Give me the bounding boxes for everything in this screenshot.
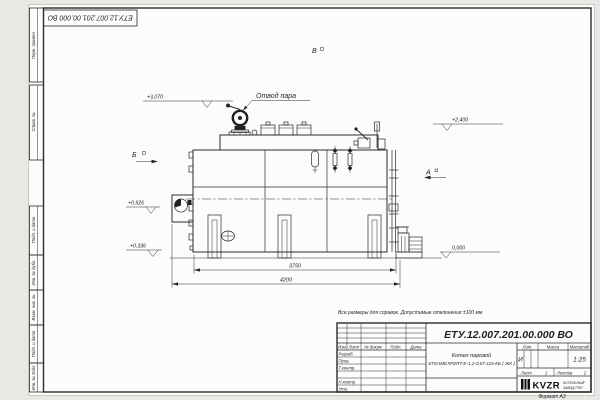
product-name-1: Котел паровой xyxy=(452,352,491,359)
logo-icon xyxy=(521,379,530,390)
svg-text:А: А xyxy=(425,170,431,177)
logo-name: KVZR xyxy=(533,381,560,392)
col-header: № докум. xyxy=(364,344,382,349)
logo-sub-2: ЗАВОД РЭП xyxy=(563,386,583,390)
dim-4200-text: 4200 xyxy=(280,278,293,284)
top-designation-text: ЕТУ.12.007.201.00.000 ВО xyxy=(47,13,133,20)
sign-label: Н.контр. xyxy=(339,380,357,385)
margin-label: Взам. инв. № xyxy=(31,294,36,320)
svg-text:+0,926: +0,926 xyxy=(128,201,144,207)
engineering-drawing-sheet: Перв. примен. Справ. № Подп. и дата Инв.… xyxy=(0,0,600,400)
col-header: Подп. xyxy=(390,344,401,349)
svg-text:0,000: 0,000 xyxy=(452,246,465,252)
format-note: Формат А3 xyxy=(538,394,566,400)
sheets-label: Листов xyxy=(556,370,573,375)
lit-value: И xyxy=(518,357,523,364)
reference-note: Все размеры для справок. Допустимые откл… xyxy=(338,310,483,316)
scale-value: 1:25 xyxy=(573,357,586,364)
svg-text:В: В xyxy=(312,48,317,55)
sight-glass xyxy=(222,231,235,241)
margin-label: Подп. и дата xyxy=(31,216,36,243)
steam-outlet-label: Отвод пара xyxy=(256,92,296,100)
sign-label: Утв. xyxy=(339,386,349,391)
margin-label: Подп. и дата xyxy=(31,330,36,357)
sign-label: Разраб. xyxy=(339,352,354,357)
logo-sub-1: КОТЕЛЬНЫЙ xyxy=(563,381,585,385)
margin-label: Инв. № подл. xyxy=(31,365,36,391)
margin-label: Перв. примен. xyxy=(31,31,36,59)
col-header: Дата xyxy=(409,344,422,349)
product-name-2: STEAMEXPERT-Е-1,2-0,07-115-КБ ( ЖК ) xyxy=(428,361,515,366)
sheet-value: 1 xyxy=(545,370,547,375)
dim-3750-text: 3750 xyxy=(289,264,302,270)
col-header: Изм xyxy=(338,344,346,349)
scale-header: Масштаб xyxy=(570,344,590,349)
sign-label: Пров. xyxy=(339,359,350,364)
lit-header: Лит. xyxy=(522,344,533,349)
title-designation: ЕТУ.12.007.201.00.000 ВО xyxy=(444,329,573,341)
svg-text:+3,070: +3,070 xyxy=(147,95,163,101)
sign-label: Т.контр. xyxy=(339,366,356,371)
sheet-label: Лист xyxy=(520,370,532,375)
margin-label: Инв. № дубл. xyxy=(31,260,36,286)
mass-header: Масса xyxy=(547,344,560,349)
svg-text:+2,400: +2,400 xyxy=(452,118,468,124)
margin-label: Справ. № xyxy=(31,112,36,131)
col-header: Лист xyxy=(348,344,360,349)
svg-text:Б: Б xyxy=(132,152,137,159)
svg-text:+0,336: +0,336 xyxy=(130,244,146,250)
